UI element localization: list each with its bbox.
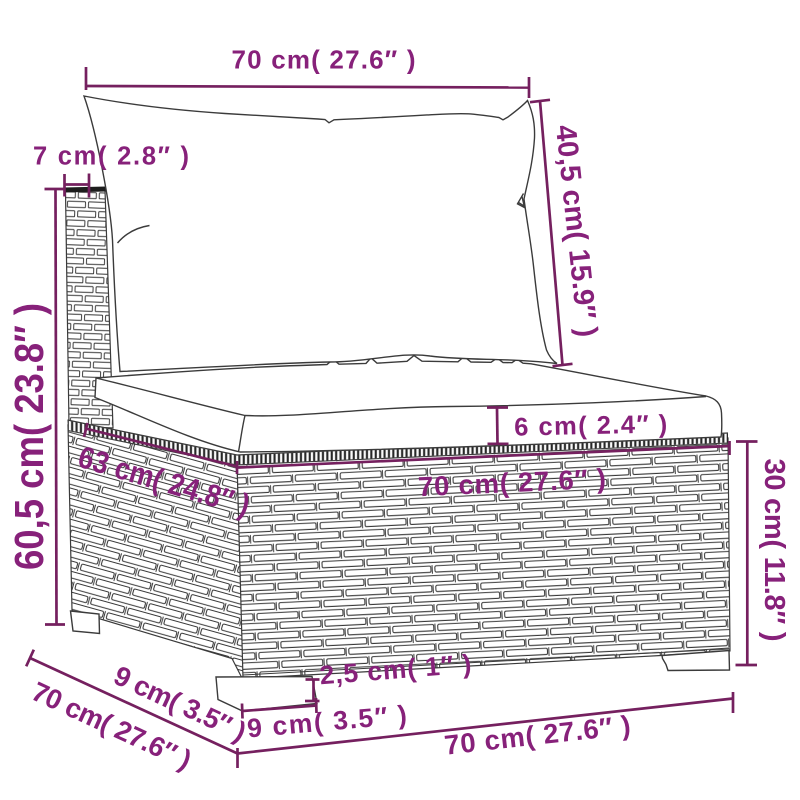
svg-text:30 cm( 11.8″ ): 30 cm( 11.8″ ) (758, 459, 790, 642)
svg-text:70 cm( 27.6″ ): 70 cm( 27.6″ ) (232, 45, 416, 75)
svg-text:60,5 cm( 23.8″ ): 60,5 cm( 23.8″ ) (6, 303, 52, 570)
